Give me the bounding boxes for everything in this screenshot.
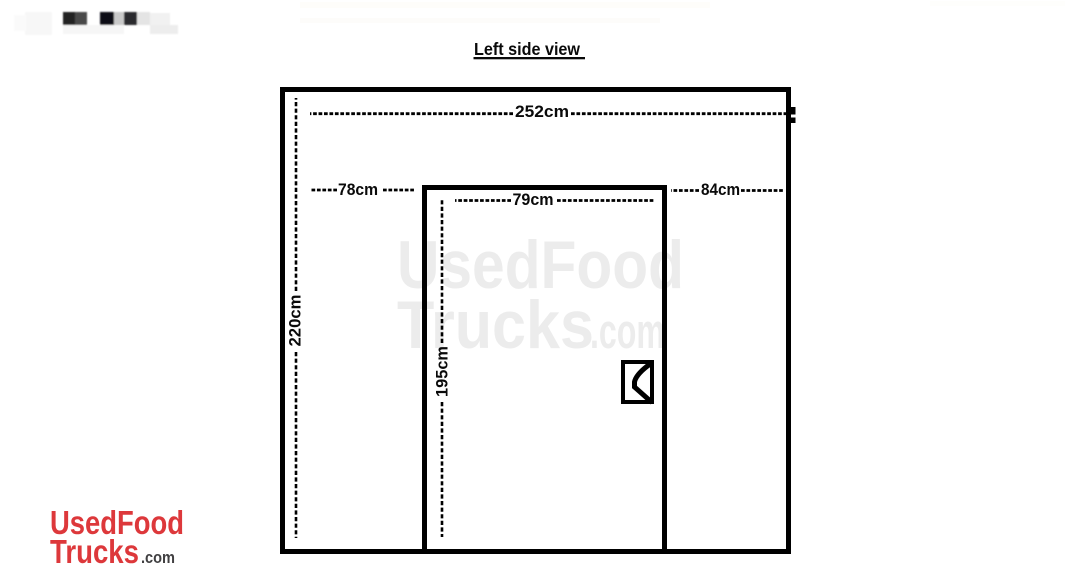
svg-text:220cm: 220cm (287, 295, 305, 347)
svg-text:195cm: 195cm (434, 346, 452, 397)
svg-text:.com: .com (590, 305, 665, 359)
svg-text:84cm: 84cm (701, 181, 740, 199)
svg-text:.com: .com (141, 548, 175, 567)
svg-text:Trucks: Trucks (50, 534, 139, 571)
svg-text:78cm: 78cm (338, 181, 378, 199)
svg-text:Left side view: Left side view (474, 39, 580, 59)
svg-text:79cm: 79cm (513, 191, 554, 209)
svg-text:252cm: 252cm (515, 103, 569, 121)
